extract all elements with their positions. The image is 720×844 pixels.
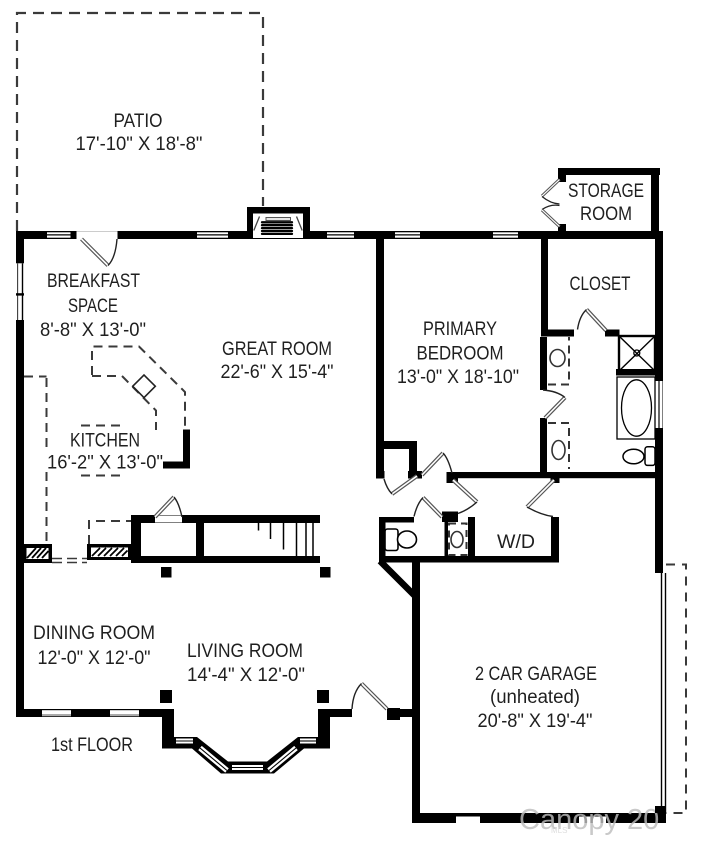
svg-text:8'-8" X 13'-0": 8'-8" X 13'-0" [40,320,146,341]
svg-text:CLOSET: CLOSET [570,274,631,295]
svg-text:GREAT ROOM: GREAT ROOM [222,339,332,360]
svg-text:BEDROOM: BEDROOM [417,344,504,365]
svg-text:BREAKFAST: BREAKFAST [47,271,140,292]
svg-text:DINING ROOM: DINING ROOM [33,623,155,644]
svg-text:SPACE: SPACE [68,296,118,317]
svg-text:PRIMARY: PRIMARY [423,319,497,340]
svg-text:16'-2" X 13'-0": 16'-2" X 13'-0" [47,453,163,474]
svg-text:2 CAR GARAGE: 2 CAR GARAGE [475,664,597,685]
svg-text:17'-10" X 18'-8": 17'-10" X 18'-8" [76,134,203,155]
svg-text:20'-8" X 19'-4": 20'-8" X 19'-4" [478,711,593,732]
svg-text:12'-0" X 12'-0": 12'-0" X 12'-0" [38,648,151,669]
svg-text:W/D: W/D [497,532,535,553]
svg-text:MLS: MLS [551,826,567,835]
svg-text:(unheated): (unheated) [490,687,580,708]
svg-text:13'-0" X 18'-10": 13'-0" X 18'-10" [397,367,519,388]
svg-text:ROOM: ROOM [580,204,632,225]
svg-text:14'-4" X 12'-0": 14'-4" X 12'-0" [187,665,305,686]
svg-text:1st FLOOR: 1st FLOOR [51,735,133,756]
svg-text:KITCHEN: KITCHEN [70,431,140,452]
svg-text:PATIO: PATIO [114,111,163,132]
svg-text:22'-6" X 15'-4": 22'-6" X 15'-4" [221,362,334,383]
svg-text:STORAGE: STORAGE [568,181,644,202]
svg-text:LIVING ROOM: LIVING ROOM [187,641,303,662]
